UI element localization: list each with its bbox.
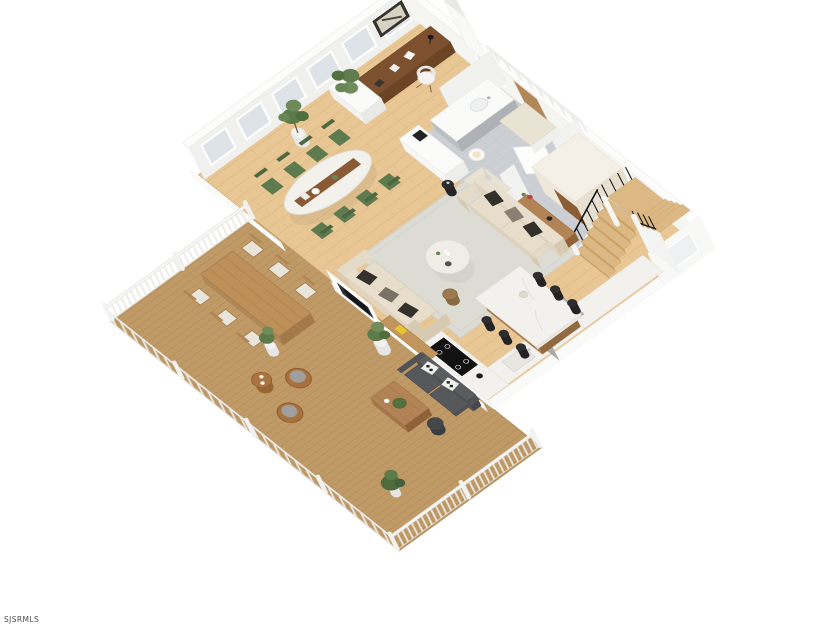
- watermark-text: SJSRMLS: [4, 615, 39, 624]
- floor-plan-rendering: SJSRMLS: [0, 0, 840, 630]
